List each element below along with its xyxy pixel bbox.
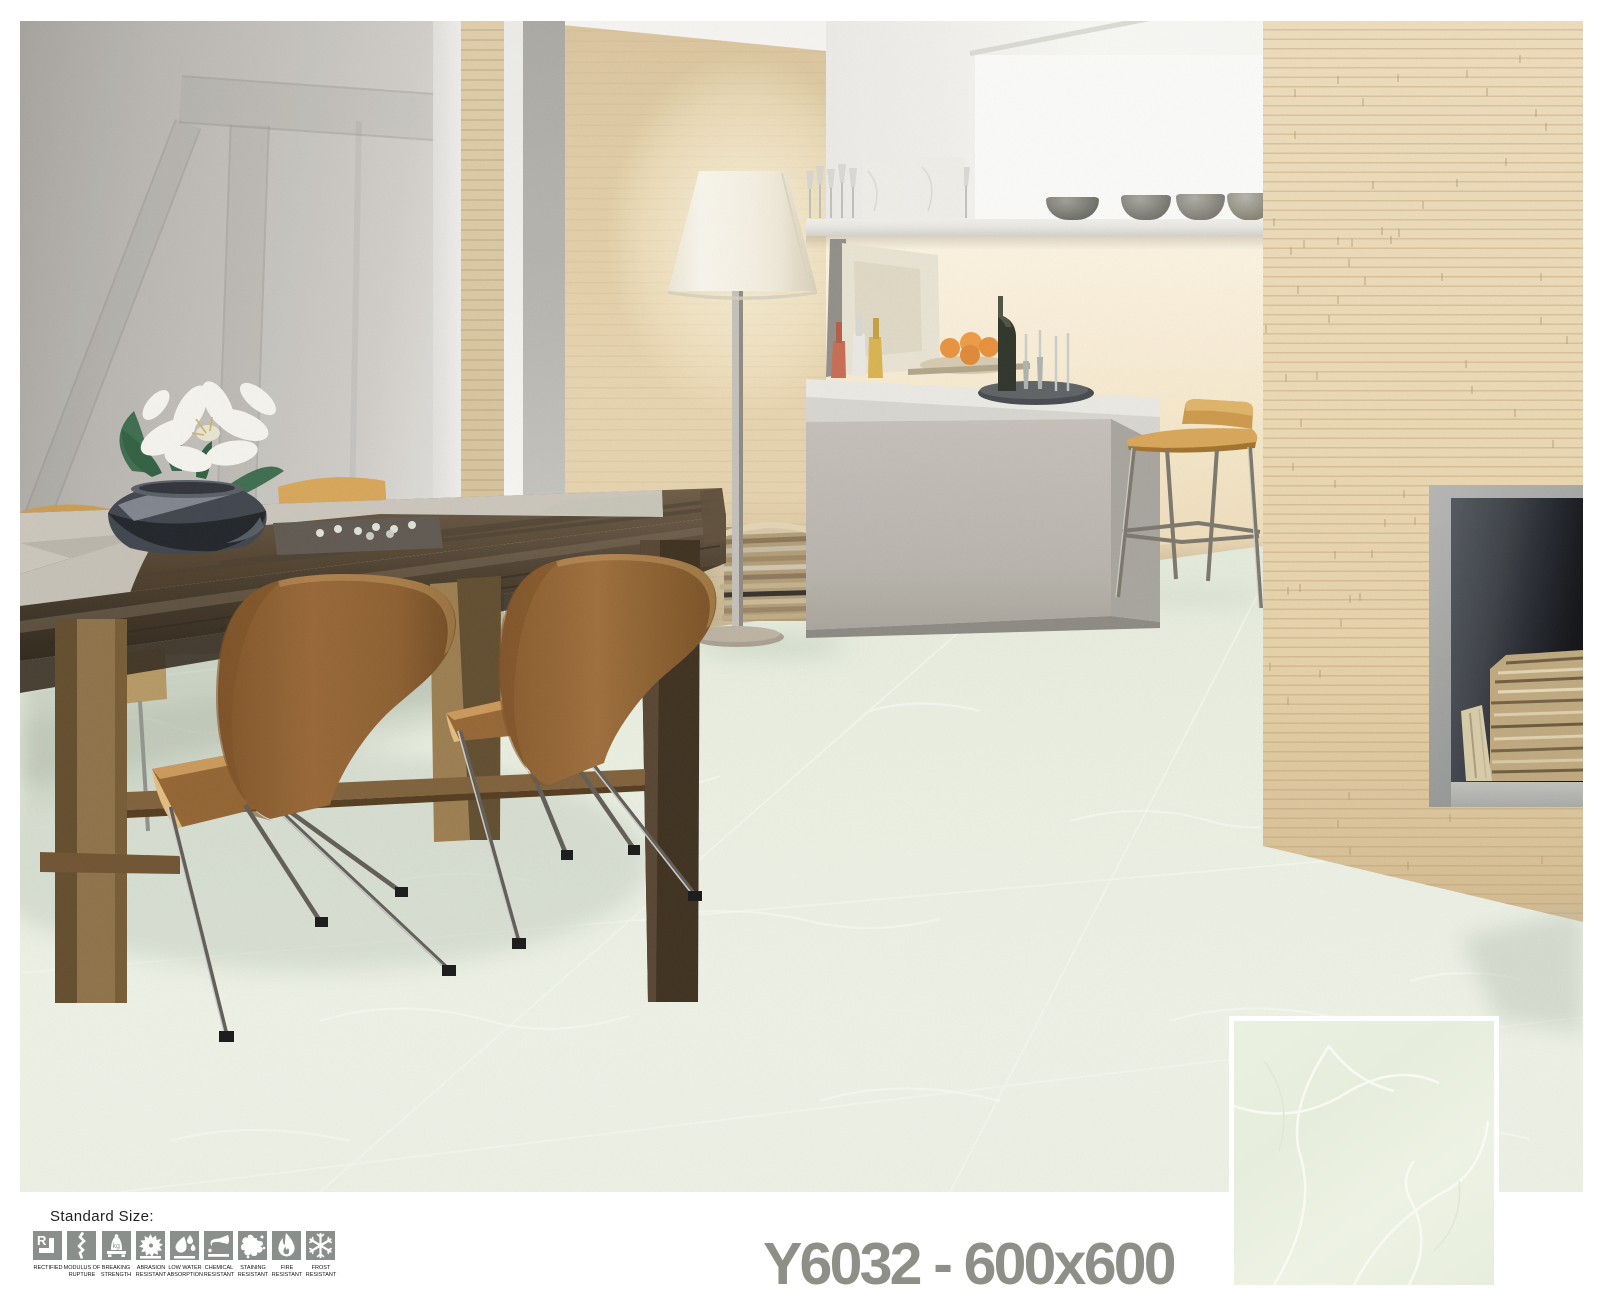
svg-text:R: R <box>37 1233 47 1248</box>
svg-text:kg: kg <box>113 1243 121 1250</box>
